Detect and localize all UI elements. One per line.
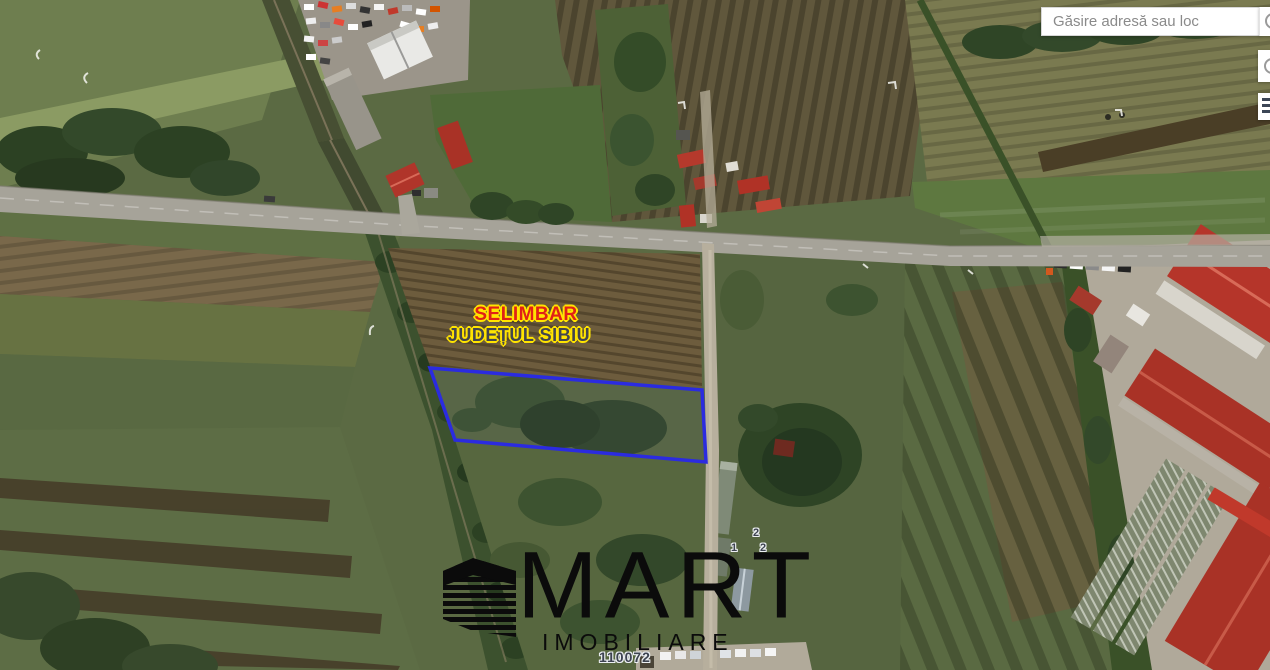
map-viewport[interactable]: SELIMBAR JUDEȚUL SIBIU 110072 2 1 2 MART… — [0, 0, 1270, 670]
fields-top-right — [905, 0, 1270, 254]
secondary-search-button[interactable] — [1258, 50, 1270, 82]
search-icon — [1265, 13, 1270, 29]
layers-button[interactable] — [1258, 93, 1270, 120]
layers-icon — [1262, 110, 1270, 113]
layers-icon — [1262, 104, 1270, 107]
search-icon — [1264, 58, 1270, 74]
search-button[interactable] — [1259, 7, 1270, 36]
satellite-imagery[interactable] — [0, 0, 1270, 670]
layers-icon — [1262, 98, 1270, 101]
search-box — [1041, 7, 1260, 36]
search-input[interactable] — [1042, 8, 1260, 35]
